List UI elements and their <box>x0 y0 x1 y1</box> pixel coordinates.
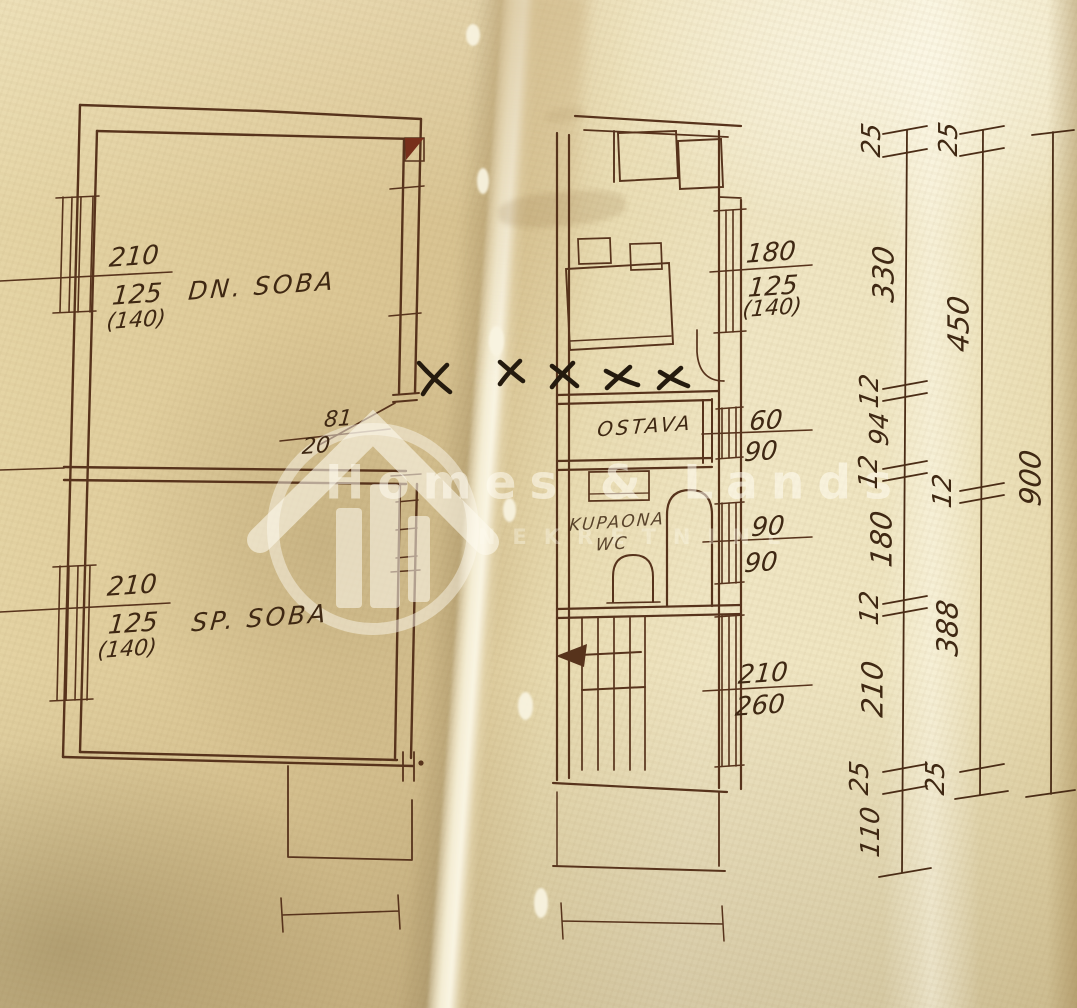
dim-bedroom-window-alt: (140) <box>97 637 158 663</box>
dim-kitchen-window-alt: (140) <box>742 296 803 322</box>
dim-living-window-w: 210 <box>108 242 160 272</box>
chain-middle-388: 388 <box>934 598 963 658</box>
dim-living-window-h: 125 <box>111 280 163 310</box>
watermark-brand: Homes & Lands <box>325 456 905 511</box>
stair-direction-arrow <box>580 652 641 655</box>
room-label-pantry: OSTAVA <box>596 413 693 440</box>
room-label-wc: WC <box>595 535 629 554</box>
scanned-floorplan-page: Homes & Lands NEKRETNINE DN. SOBA SP. SO… <box>0 0 1077 1008</box>
dim-stair-window-w: 210 <box>737 659 789 689</box>
dim-pantry-door-w: 60 <box>748 407 783 436</box>
x-mark <box>659 368 688 388</box>
chain-inner-110: 110 <box>858 805 884 859</box>
dim-bath-window-h: 90 <box>743 549 778 578</box>
chain-inner-180: 180 <box>868 509 897 569</box>
chain-inner-12c: 12 <box>857 589 883 626</box>
chain-inner-25a: 25 <box>859 121 885 158</box>
chain-inner-25b: 25 <box>847 759 873 796</box>
chain-outer-900: 900 <box>1017 448 1046 508</box>
dim-bath-window-w: 90 <box>750 513 785 542</box>
dimension-chain-middle <box>955 126 1008 799</box>
x-mark <box>419 363 450 394</box>
chain-middle-25b: 25 <box>923 759 949 796</box>
x-annotations <box>419 361 688 394</box>
dim-stair-window-h: 260 <box>734 691 786 721</box>
dim-living-window-alt: (140) <box>106 308 167 334</box>
left-block-step <box>288 752 424 860</box>
entry-cells <box>614 131 723 189</box>
logo-bar <box>336 508 362 608</box>
chain-inner-94: 94 <box>867 410 893 447</box>
chain-inner-210: 210 <box>859 659 888 719</box>
chain-inner-12b: 12 <box>856 453 882 490</box>
dim-kitchen-window-w: 180 <box>745 238 797 268</box>
x-mark <box>552 363 577 387</box>
chain-inner-330: 330 <box>870 244 899 304</box>
chain-middle-450: 450 <box>945 294 974 354</box>
stair-arrow-head <box>556 644 587 667</box>
chain-middle-12: 12 <box>930 472 956 509</box>
logo-bar <box>408 516 430 602</box>
chain-inner-12a: 12 <box>857 372 883 409</box>
dim-pantry-door-h: 90 <box>743 438 778 467</box>
toilet <box>607 555 660 603</box>
x-mark <box>606 367 638 388</box>
chain-middle-25a: 25 <box>936 120 962 157</box>
x-mark <box>500 361 523 384</box>
dim-bedroom-window-w: 210 <box>106 571 158 601</box>
dim-living-door-w: 81 <box>323 408 353 432</box>
dim-living-door-h: 20 <box>301 435 331 459</box>
bedroom-window <box>50 565 96 701</box>
right-dimension-lines <box>561 265 812 941</box>
kitchen-furniture <box>566 238 673 350</box>
